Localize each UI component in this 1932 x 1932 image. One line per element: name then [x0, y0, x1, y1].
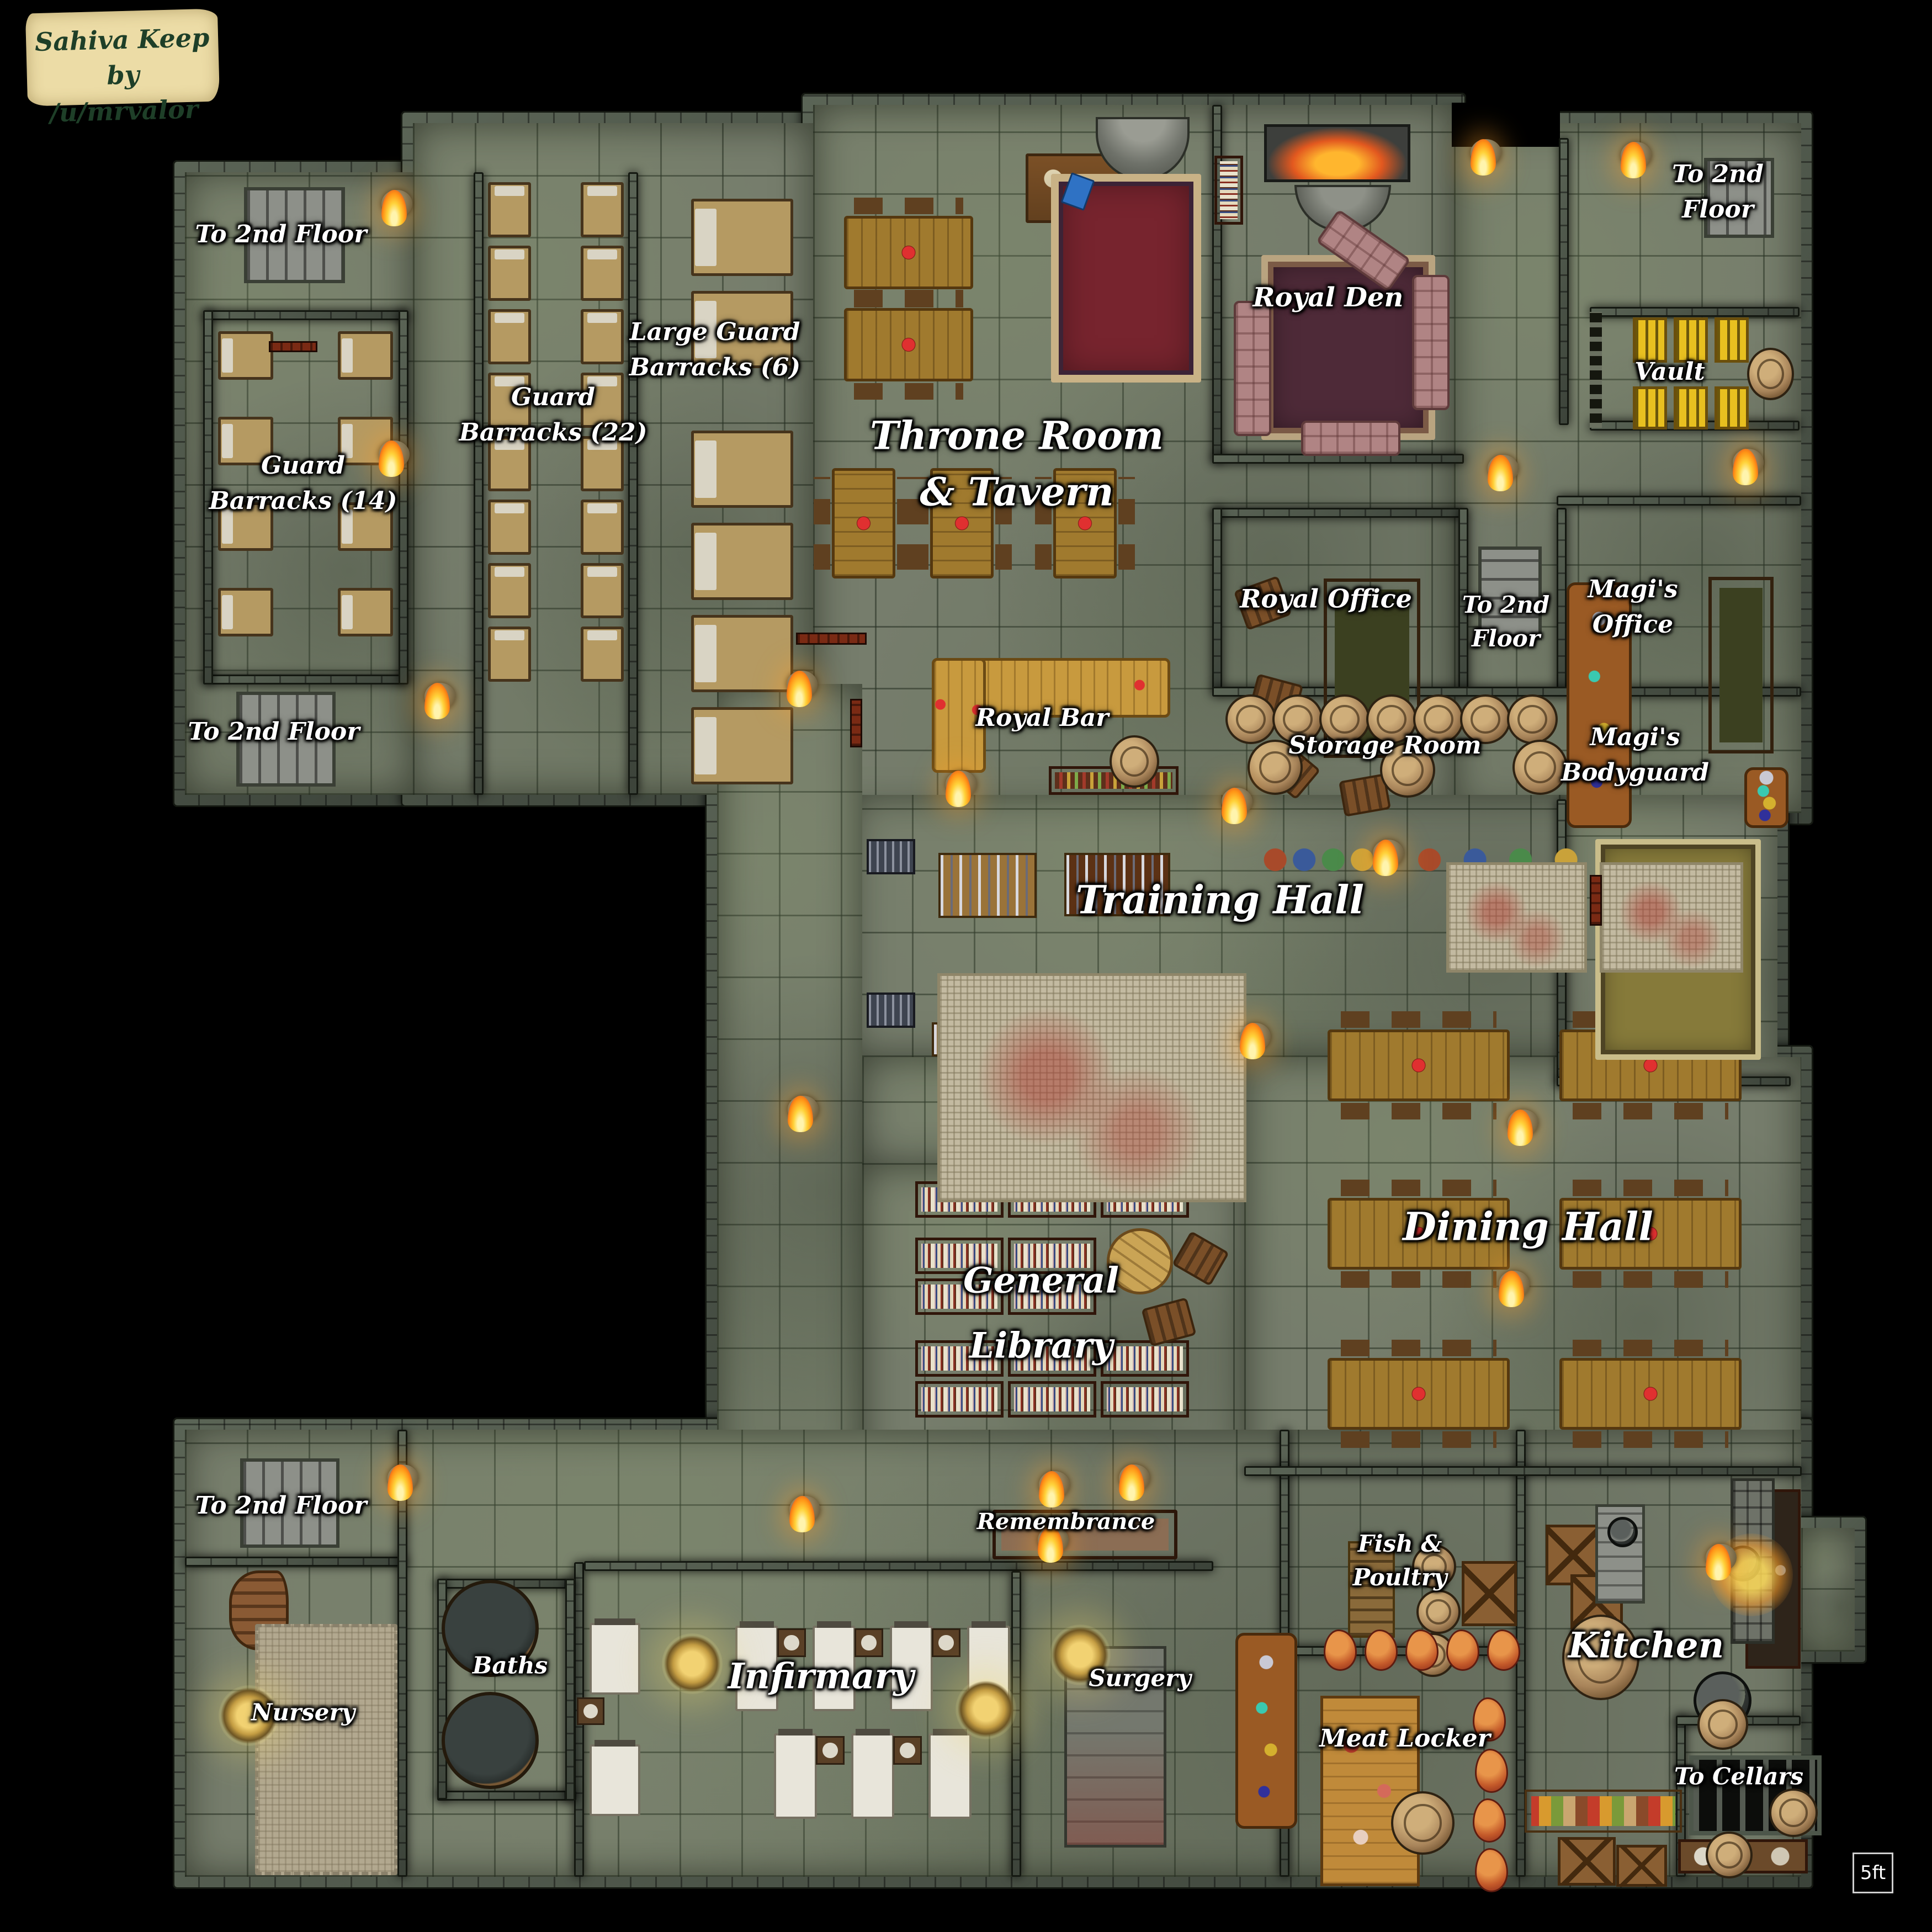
rug-den	[1261, 255, 1435, 440]
torch-icon	[1039, 1471, 1078, 1510]
mat	[1446, 862, 1587, 973]
room-label-general-library: General Library	[963, 1249, 1119, 1379]
room-label-kitchen: Kitchen	[1568, 1621, 1724, 1672]
door-v	[850, 699, 862, 747]
torch-icon	[1499, 1271, 1537, 1309]
map-byline: by /u/mrvalor	[32, 55, 215, 131]
scale-badge: 5ft	[1853, 1853, 1893, 1893]
room-label-guard-barracks-14: Guard Barracks (14)	[209, 448, 397, 519]
torch-icon	[1240, 1023, 1278, 1061]
lamp-icon	[662, 1633, 723, 1694]
room-label-royal-office: Royal Office	[1240, 581, 1412, 618]
room-label-fish-poultry: Fish & Poultry	[1353, 1527, 1447, 1595]
map-title: Sahiva Keep	[31, 20, 213, 60]
bar-counter-v	[932, 658, 986, 773]
room-label-to-2nd-floor-bottomleft: To 2nd Floor	[195, 1488, 367, 1524]
room-label-baths: Baths	[473, 1649, 548, 1683]
door-h	[796, 633, 867, 645]
mat	[937, 973, 1246, 1202]
torch-icon	[1119, 1464, 1158, 1503]
room-label-to-2nd-floor-middle: To 2nd Floor	[1462, 588, 1549, 656]
torch-icon	[789, 1496, 828, 1535]
torch-icon	[381, 190, 420, 229]
room-label-throne-room-tavern: Throne Room & Tavern	[870, 408, 1164, 520]
door-v	[1590, 875, 1602, 926]
scale-label: 5ft	[1860, 1862, 1886, 1884]
torch-icon	[1733, 449, 1771, 487]
torch-icon	[1508, 1110, 1546, 1148]
torch-icon	[1038, 1526, 1076, 1565]
room-label-to-cellars: To Cellars	[1674, 1760, 1803, 1794]
torch-icon	[1706, 1544, 1744, 1583]
room-label-large-guard-barracks-6: Large Guard Barracks (6)	[629, 315, 800, 385]
torch-icon	[1471, 139, 1509, 178]
title-card: Sahiva Keep by /u/mrvalor	[25, 8, 220, 106]
torch-icon	[424, 683, 463, 721]
torch-icon	[1488, 455, 1526, 493]
room-label-magis-office: Magi's Office	[1588, 572, 1678, 643]
rug-burlap	[255, 1624, 397, 1875]
room-label-to-2nd-floor-topleft: To 2nd Floor	[195, 217, 367, 252]
door-h	[269, 341, 317, 352]
room-label-to-2nd-floor-left: To 2nd Floor	[188, 714, 360, 750]
room-label-magis-bodyguard: Magi's Bodyguard	[1561, 720, 1709, 790]
couch-v	[1234, 301, 1271, 436]
room-label-dining-hall: Dining Hall	[1403, 1198, 1653, 1255]
room-label-meat-locker: Meat Locker	[1319, 1721, 1490, 1756]
lamp-icon	[1050, 1625, 1111, 1685]
mat	[1600, 862, 1743, 973]
dungeon-map-canvas: To 2nd FloorGuard Barracks (14)Guard Bar…	[0, 0, 1932, 1932]
torch-icon	[946, 771, 984, 809]
room-label-guard-barracks-22: Guard Barracks (22)	[459, 380, 647, 450]
couch-h	[1301, 421, 1400, 456]
torch-icon	[1373, 840, 1411, 878]
torch-icon	[787, 671, 825, 709]
room-label-training-hall: Training Hall	[1076, 872, 1364, 928]
lamp-icon	[219, 1685, 279, 1746]
torch-icon	[788, 1096, 826, 1134]
torch-icon	[379, 440, 417, 479]
room-label-storage-room: Storage Room	[1288, 728, 1481, 763]
lamp-icon	[956, 1679, 1016, 1739]
room-label-infirmary: Infirmary	[728, 1652, 914, 1703]
torch-icon	[1222, 788, 1260, 826]
couch-v	[1412, 275, 1450, 410]
torch-icon	[1621, 142, 1659, 181]
torch-icon	[388, 1464, 426, 1503]
room-label-vault: Vault	[1634, 354, 1705, 390]
room-label-to-2nd-floor-topright: To 2nd Floor	[1672, 157, 1764, 227]
